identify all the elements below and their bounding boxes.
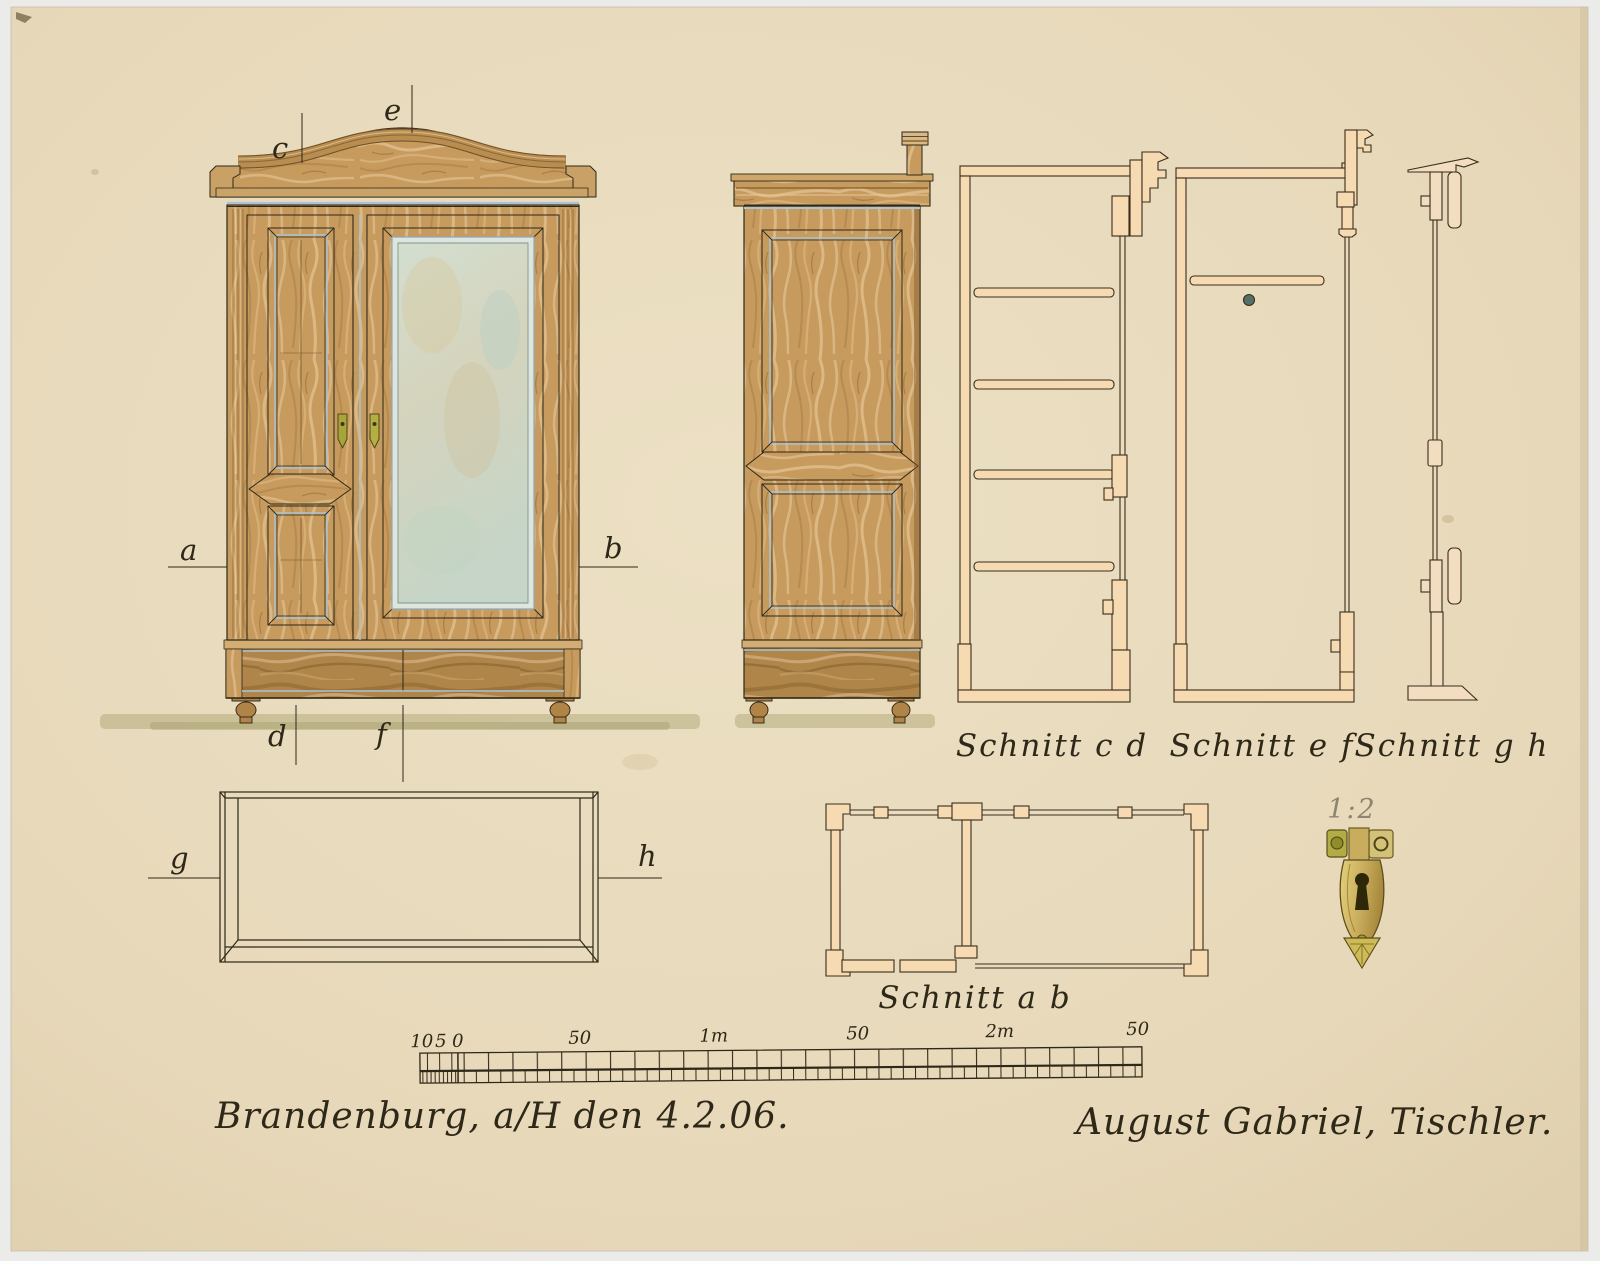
scanned-drawing-sheet: c e a b d f bbox=[0, 0, 1600, 1257]
side-elevation bbox=[731, 132, 935, 728]
signature-inscription: August Gabriel, Tischler. bbox=[1073, 1102, 1553, 1143]
section-ef-label: Schnitt e f bbox=[1170, 728, 1358, 764]
side-cornice bbox=[731, 174, 933, 208]
paper-edge-shadow bbox=[1580, 7, 1588, 1251]
marker-a: a bbox=[180, 533, 197, 567]
scale-tick-0: 0 bbox=[452, 1031, 464, 1052]
mirror-door bbox=[367, 215, 559, 640]
marker-g: g bbox=[170, 841, 189, 875]
side-panelling bbox=[744, 206, 921, 640]
section-ab-label: Schnitt a b bbox=[878, 980, 1071, 1016]
scale-tick-2m: 2m bbox=[984, 1021, 1014, 1042]
left-door bbox=[247, 215, 353, 640]
place-date-inscription: Brandenburg, a/H den 4.2.06. bbox=[214, 1096, 790, 1137]
marker-e: e bbox=[384, 93, 401, 127]
plinth-drawers bbox=[224, 640, 582, 698]
section-gh-label: Schnitt g h bbox=[1355, 728, 1550, 764]
scale-tick-50c: 50 bbox=[1126, 1019, 1149, 1040]
marker-h: h bbox=[638, 839, 657, 873]
scale-tick-50a: 50 bbox=[568, 1028, 591, 1049]
scale-tick-10: 10 bbox=[410, 1031, 433, 1052]
scale-tick-1m: 1m bbox=[699, 1025, 728, 1046]
detail-scale-label: 1:2 bbox=[1327, 794, 1376, 825]
marker-b: b bbox=[604, 531, 623, 565]
marker-d: d bbox=[268, 719, 287, 753]
side-plinth bbox=[742, 640, 922, 698]
section-cd-label: Schnitt c d bbox=[956, 728, 1148, 764]
furniture-design-drawing: c e a b d f bbox=[0, 0, 1600, 1257]
marker-c: c bbox=[272, 131, 288, 165]
scale-tick-5: 5 bbox=[435, 1031, 447, 1052]
scale-tick-50b: 50 bbox=[846, 1023, 869, 1044]
